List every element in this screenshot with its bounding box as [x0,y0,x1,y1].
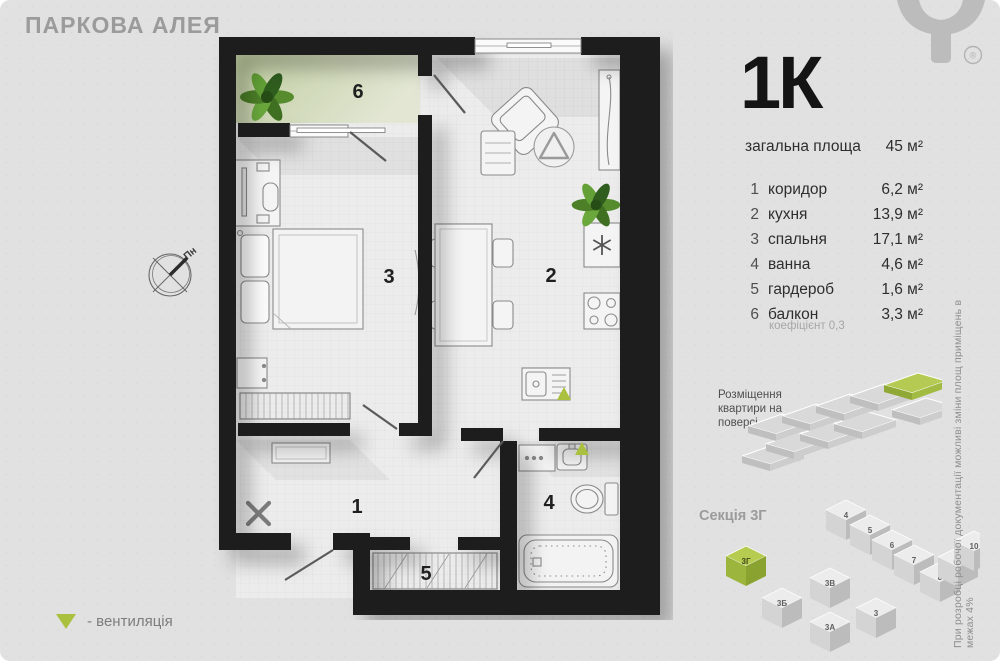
room-label-3: 3 [383,266,394,288]
chair [493,301,513,329]
total-area-value: 45 м² [886,138,923,156]
section-block-3a: 3А [825,623,835,632]
pillow [241,235,269,277]
room-area: 3,3 м² [869,306,923,324]
section-block-4: 4 [844,511,849,520]
floor-plan: 6 3 2 1 4 5 [213,25,673,620]
bathtub [519,535,618,587]
section-block-3g: 3Г [742,557,751,566]
project-title: ПАРКОВА АЛЕЯ [25,12,221,39]
room-row: 4 ванна 4,6 м² [745,252,923,277]
room-name: спальня [759,231,869,249]
room-number: 2 [745,206,759,224]
room-list: 1 коридор 6,2 м² 2 кухня 13,9 м² 3 спаль… [745,177,923,327]
room-number: 6 [745,306,759,324]
hall-bench [272,443,330,463]
dresser [240,393,350,419]
floor-position-diagram [742,368,942,476]
balcony-slider [297,128,385,133]
room-row: 5 гардероб 1,6 м² [745,277,923,302]
room-row: 3 спальня 17,1 м² [745,227,923,252]
room-name: ванна [759,256,869,274]
room-area: 13,9 м² [869,206,923,224]
room-area: 17,1 м² [869,231,923,249]
section-block-6: 6 [890,541,895,550]
section-block-3v: 3В [825,579,835,588]
footnote-disclaimer: При розробці робочої документації можлив… [952,270,976,648]
room-label-5: 5 [420,563,431,585]
room-number: 4 [745,256,759,274]
toilet-tank [605,483,618,515]
room-row: 2 кухня 13,9 м² [745,202,923,227]
total-area-row: загальна площа 45 м² [745,138,923,156]
section-block-7: 7 [912,556,917,565]
compass-icon: Пн [140,243,206,305]
room-number: 3 [745,231,759,249]
dining-table [435,224,492,346]
section-block-3b: 3Б [777,599,787,608]
wardrobe-rail [373,553,497,589]
building-section-diagram: 4 5 6 7 8 9 10 3В 3Б 3А 3 3Г [698,486,980,658]
room-row: 1 коридор 6,2 м² [745,177,923,202]
total-area-label: загальна площа [745,138,861,156]
room-name: кухня [759,206,869,224]
vent-legend-label: - вентиляція [87,613,173,630]
room-label-4: 4 [543,492,555,514]
room-label-6: 6 [352,81,363,103]
room-area: 4,6 м² [869,256,923,274]
room-label-2: 2 [545,265,556,287]
window-sash [507,43,551,48]
room-name: коридор [759,181,869,199]
chair [493,239,513,267]
vent-legend-triangle-icon [55,613,77,630]
room-label-1: 1 [351,496,362,518]
room-name: гардероб [759,281,869,299]
section-block-5: 5 [868,526,873,535]
desk-chair [263,183,278,211]
floorplan-card: ПАРКОВА АЛЕЯ ® [0,0,1000,661]
nightstand [237,358,267,388]
brand-logo-icon: ® [893,0,993,72]
coat-rack [599,70,620,170]
highlighted-section-block [726,546,766,586]
room-area: 1,6 м² [869,281,923,299]
coefficient-note: коефіцієнт 0,3 [769,320,845,332]
bath-cabinet [519,445,555,471]
room-area: 6,2 м² [869,181,923,199]
room-number: 5 [745,281,759,299]
room-number: 1 [745,181,759,199]
section-block-3: 3 [874,609,879,618]
apartment-type: 1К [740,48,820,118]
pillow [241,281,269,323]
registered-mark: ® [970,51,977,61]
vent-legend: - вентиляція [55,613,173,630]
bed [273,229,363,329]
